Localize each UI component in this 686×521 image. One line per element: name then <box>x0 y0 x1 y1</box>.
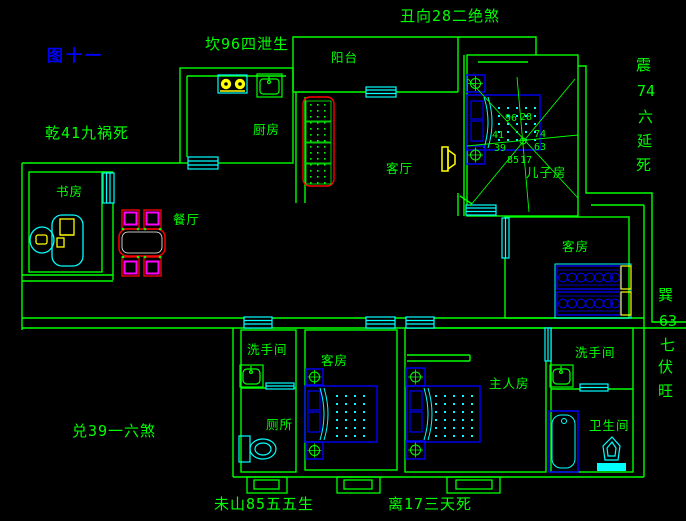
window-washroom-east <box>580 384 608 391</box>
compass-number: 74 <box>534 130 546 140</box>
annotation-north: 坎96四泄生 <box>205 37 289 52</box>
annotation-southeast-char: 七 <box>660 338 675 353</box>
wall-columns <box>247 477 500 493</box>
compass-number: 28 <box>520 113 532 123</box>
speaker <box>406 368 425 386</box>
computer <box>57 219 74 247</box>
dining-chair <box>122 256 140 276</box>
room-label-master: 主人房 <box>489 378 530 391</box>
room-label-washroom-east: 洗手间 <box>575 347 616 360</box>
annotation-east-char: 延 <box>637 134 652 149</box>
room-label-dining: 餐厅 <box>173 214 200 227</box>
window-son-room <box>466 205 496 215</box>
room-label-guest-mid: 客房 <box>321 355 348 368</box>
door-guest-east <box>502 218 509 258</box>
annotation-southeast-char: 63 <box>659 314 677 329</box>
room-label-balcony: 阳台 <box>331 52 358 65</box>
compass-number: 17 <box>520 156 532 166</box>
bed-master <box>407 386 480 442</box>
door-toilet-west <box>266 383 294 389</box>
toilet <box>597 437 626 471</box>
dining-chairs <box>122 210 162 276</box>
washbasin <box>550 365 573 387</box>
compass-number: 63 <box>534 143 546 153</box>
dining-chair <box>144 210 162 230</box>
window-south-1 <box>244 317 272 328</box>
window-kitchen <box>188 157 218 169</box>
door-study <box>103 173 114 203</box>
annotation-southeast-char: 旺 <box>658 384 673 399</box>
twin-beds <box>555 264 631 318</box>
speaker <box>466 75 485 92</box>
bed-guest-mid <box>305 386 377 442</box>
room-label-kitchen: 厨房 <box>253 124 280 137</box>
compass-number: 85 <box>507 156 519 166</box>
sofa <box>303 97 334 186</box>
dining-table <box>119 229 165 256</box>
annotation-east-char: 74 <box>637 84 655 99</box>
stove <box>218 75 247 93</box>
door-washroom-east <box>545 328 551 361</box>
dining-chair <box>122 210 140 230</box>
annotation-mountain: 未山85五五生 <box>214 497 314 512</box>
speaker <box>306 369 323 385</box>
room-label-study: 书房 <box>56 186 83 199</box>
desk-chair <box>30 227 54 253</box>
room-label-toilet-west: 厕所 <box>266 419 293 432</box>
annotation-southeast-char: 巽 <box>658 288 673 303</box>
annotation-west: 兑39一六煞 <box>72 424 156 439</box>
annotation-facing: 丑向28二绝煞 <box>400 9 500 24</box>
room-label-bathroom-east: 卫生间 <box>589 420 630 433</box>
room-label-guest-east: 客房 <box>562 241 589 254</box>
dining-chair <box>144 256 162 276</box>
window-south-2 <box>366 317 395 328</box>
window-balcony <box>366 87 396 97</box>
floor-plan-canvas: 图十一 坎96四泄生 丑向28二绝煞 乾41九祸死 兑39一六煞 未山85五五生… <box>0 0 686 521</box>
speaker <box>466 146 485 164</box>
tv-speaker <box>442 147 455 171</box>
speaker <box>306 442 323 459</box>
compass-number: 39 <box>494 144 506 154</box>
room-label-son-bedroom: 儿子房 <box>526 167 567 180</box>
compass-number: 96 <box>505 114 517 124</box>
washbasin <box>240 365 263 387</box>
annotation-northwest: 乾41九祸死 <box>45 126 129 141</box>
floor-plan-drawing <box>0 0 686 521</box>
annotation-east-char: 六 <box>638 110 653 125</box>
figure-label: 图十一 <box>47 48 104 64</box>
annotation-east-char: 震 <box>636 58 651 73</box>
annotation-southeast-char: 伏 <box>658 360 673 375</box>
annotation-east-char: 死 <box>636 158 651 173</box>
kitchen-sink <box>257 74 282 97</box>
room-label-living: 客厅 <box>386 163 413 176</box>
annotation-south: 离17三天死 <box>388 497 472 512</box>
room-label-washroom-west: 洗手间 <box>247 344 288 357</box>
window-south-3 <box>406 317 434 328</box>
bathtub <box>549 411 578 472</box>
speaker <box>406 441 425 459</box>
compass-number: 41 <box>492 131 504 141</box>
toilet <box>239 436 276 462</box>
